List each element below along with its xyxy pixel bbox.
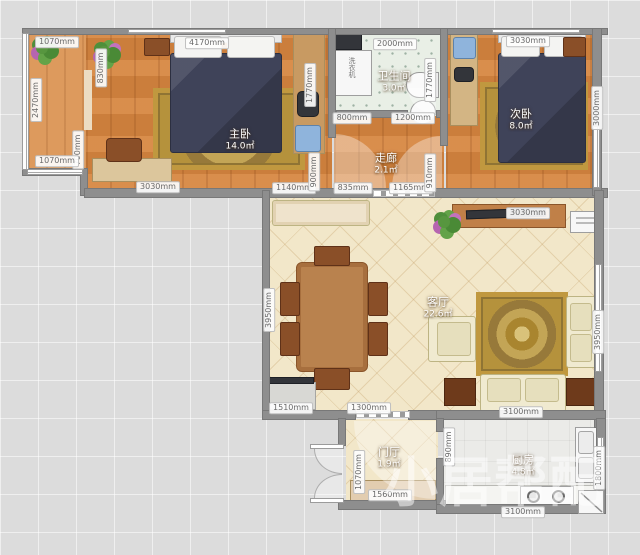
master-nightstand [144, 38, 170, 56]
desk [450, 34, 478, 126]
entry-door-swing [314, 449, 342, 474]
room-label-living-room: 客厅 22.6㎡ [423, 297, 452, 320]
dining-chair [314, 368, 350, 390]
dining-chair [280, 282, 300, 316]
wall [440, 28, 448, 146]
wall [338, 418, 346, 446]
dimension-label: 3000mm [591, 86, 603, 130]
dimension-label: 3100mm [499, 406, 543, 418]
dimension-label: 4170mm [185, 37, 229, 49]
master-stool [106, 138, 142, 162]
room-label-second-bedroom: 次卧 8.0㎡ [509, 109, 532, 132]
wall [338, 500, 446, 510]
dimension-label: 3030mm [136, 181, 180, 193]
dimension-label: 1560mm [368, 489, 412, 501]
room-label-entry-hall: 门厅 1.9㎡ [377, 447, 400, 470]
dimension-label: 1770mm [304, 63, 316, 107]
dimension-label: 830mm [95, 49, 107, 88]
balcony-window [27, 169, 83, 175]
dimension-label: 3100mm [501, 506, 545, 518]
room-label-master-bedroom: 主卧 14.0㎡ [225, 129, 254, 152]
dimension-label: 2000mm [373, 38, 417, 50]
room-label-kitchen: 厨房 4.8㎡ [511, 455, 534, 478]
balcony-window [22, 33, 29, 170]
plant-icon [438, 216, 450, 228]
entry-door [310, 498, 344, 503]
dimension-label: 1070mm [35, 36, 79, 48]
dimension-label: 1800mm [593, 446, 605, 490]
tv-flat [266, 377, 314, 384]
dining-chair [280, 322, 300, 356]
kitchen-back-door [578, 490, 604, 514]
dining-table [296, 262, 368, 372]
sideboard [272, 200, 370, 226]
second-nightstand [563, 37, 586, 57]
washing-machine: 洗衣机 [334, 50, 372, 96]
dimension-label: 1770mm [424, 58, 436, 102]
room-label-corridor: 走廊 2.1㎡ [374, 153, 397, 176]
dimension-label: 1200mm [391, 112, 435, 124]
dimension-label: 890mm [443, 428, 455, 467]
living-room-rug [476, 292, 568, 376]
dimension-label: 910mm [424, 154, 436, 193]
room-label-bathroom: 卫生间 3.0㎡ [378, 71, 411, 94]
armchair [428, 316, 476, 362]
side-table [444, 378, 476, 406]
dimension-label: 1300mm [347, 402, 391, 414]
dimension-label: 3030mm [506, 35, 550, 47]
dining-chair [314, 246, 350, 266]
side-table [566, 378, 596, 406]
dimension-label: 2470mm [30, 78, 42, 122]
floor-plan: 洗衣机 [0, 0, 640, 555]
dimension-label: 1510mm [269, 402, 313, 414]
entry-door-swing [314, 474, 342, 498]
dimension-label: 3950mm [263, 288, 275, 332]
dimension-label: 800mm [333, 112, 372, 124]
dimension-label: 3950mm [592, 310, 604, 354]
washing-machine-label: 洗衣机 [348, 57, 355, 78]
dimension-label: 835mm [334, 182, 373, 194]
second-bedroom-side-window [593, 126, 600, 188]
second-bedroom-window [492, 29, 580, 34]
master-window [128, 29, 226, 34]
dimension-label: 3030mm [506, 207, 550, 219]
entry-door [310, 444, 344, 449]
dining-chair [368, 282, 388, 316]
dining-chair [368, 322, 388, 356]
balcony-threshold [84, 70, 92, 130]
dimension-label: 900mm [308, 153, 320, 192]
dimension-label: 1070mm [35, 155, 79, 167]
dimension-label: 1070mm [353, 450, 365, 494]
